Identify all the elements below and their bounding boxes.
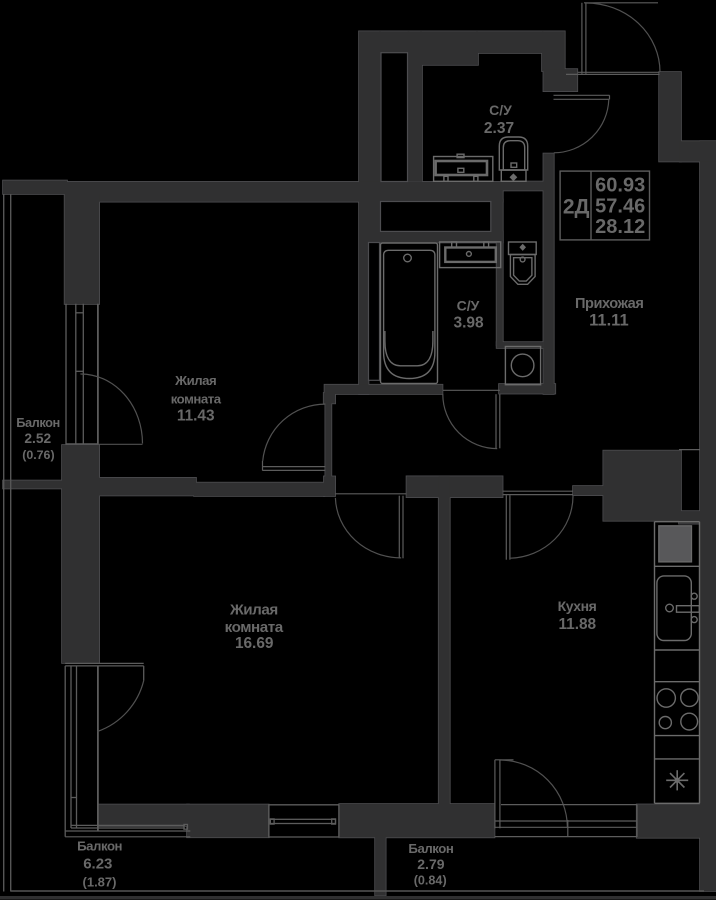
svg-text:57.46: 57.46	[595, 195, 645, 217]
svg-text:(0.76): (0.76)	[22, 448, 54, 462]
svg-text:11.11: 11.11	[589, 311, 628, 329]
svg-text:Балкон: Балкон	[77, 838, 122, 853]
svg-text:2.37: 2.37	[484, 120, 514, 137]
svg-text:(1.87): (1.87)	[83, 875, 117, 890]
svg-text:Кухня: Кухня	[558, 598, 597, 614]
svg-text:С/У: С/У	[489, 102, 512, 118]
svg-text:6.23: 6.23	[83, 856, 112, 873]
svg-text:2.52: 2.52	[24, 431, 51, 446]
svg-text:комната: комната	[225, 619, 284, 636]
svg-text:60.93: 60.93	[595, 175, 645, 197]
svg-text:(0.84): (0.84)	[414, 874, 447, 888]
svg-text:Балкон: Балкон	[16, 415, 60, 430]
svg-text:Балкон: Балкон	[408, 841, 453, 856]
svg-text:16.69: 16.69	[235, 635, 274, 652]
svg-text:11.88: 11.88	[558, 616, 596, 633]
svg-text:комната: комната	[171, 392, 222, 407]
svg-text:3.98: 3.98	[454, 314, 485, 331]
svg-text:С/У: С/У	[457, 298, 480, 314]
svg-text:28.12: 28.12	[595, 216, 645, 238]
svg-text:2Д: 2Д	[563, 195, 590, 218]
svg-text:Жилая: Жилая	[229, 602, 278, 619]
svg-text:11.43: 11.43	[177, 407, 215, 424]
svg-text:Прихожая: Прихожая	[575, 296, 643, 312]
svg-text:2.79: 2.79	[417, 856, 444, 872]
svg-text:Жилая: Жилая	[174, 373, 216, 388]
